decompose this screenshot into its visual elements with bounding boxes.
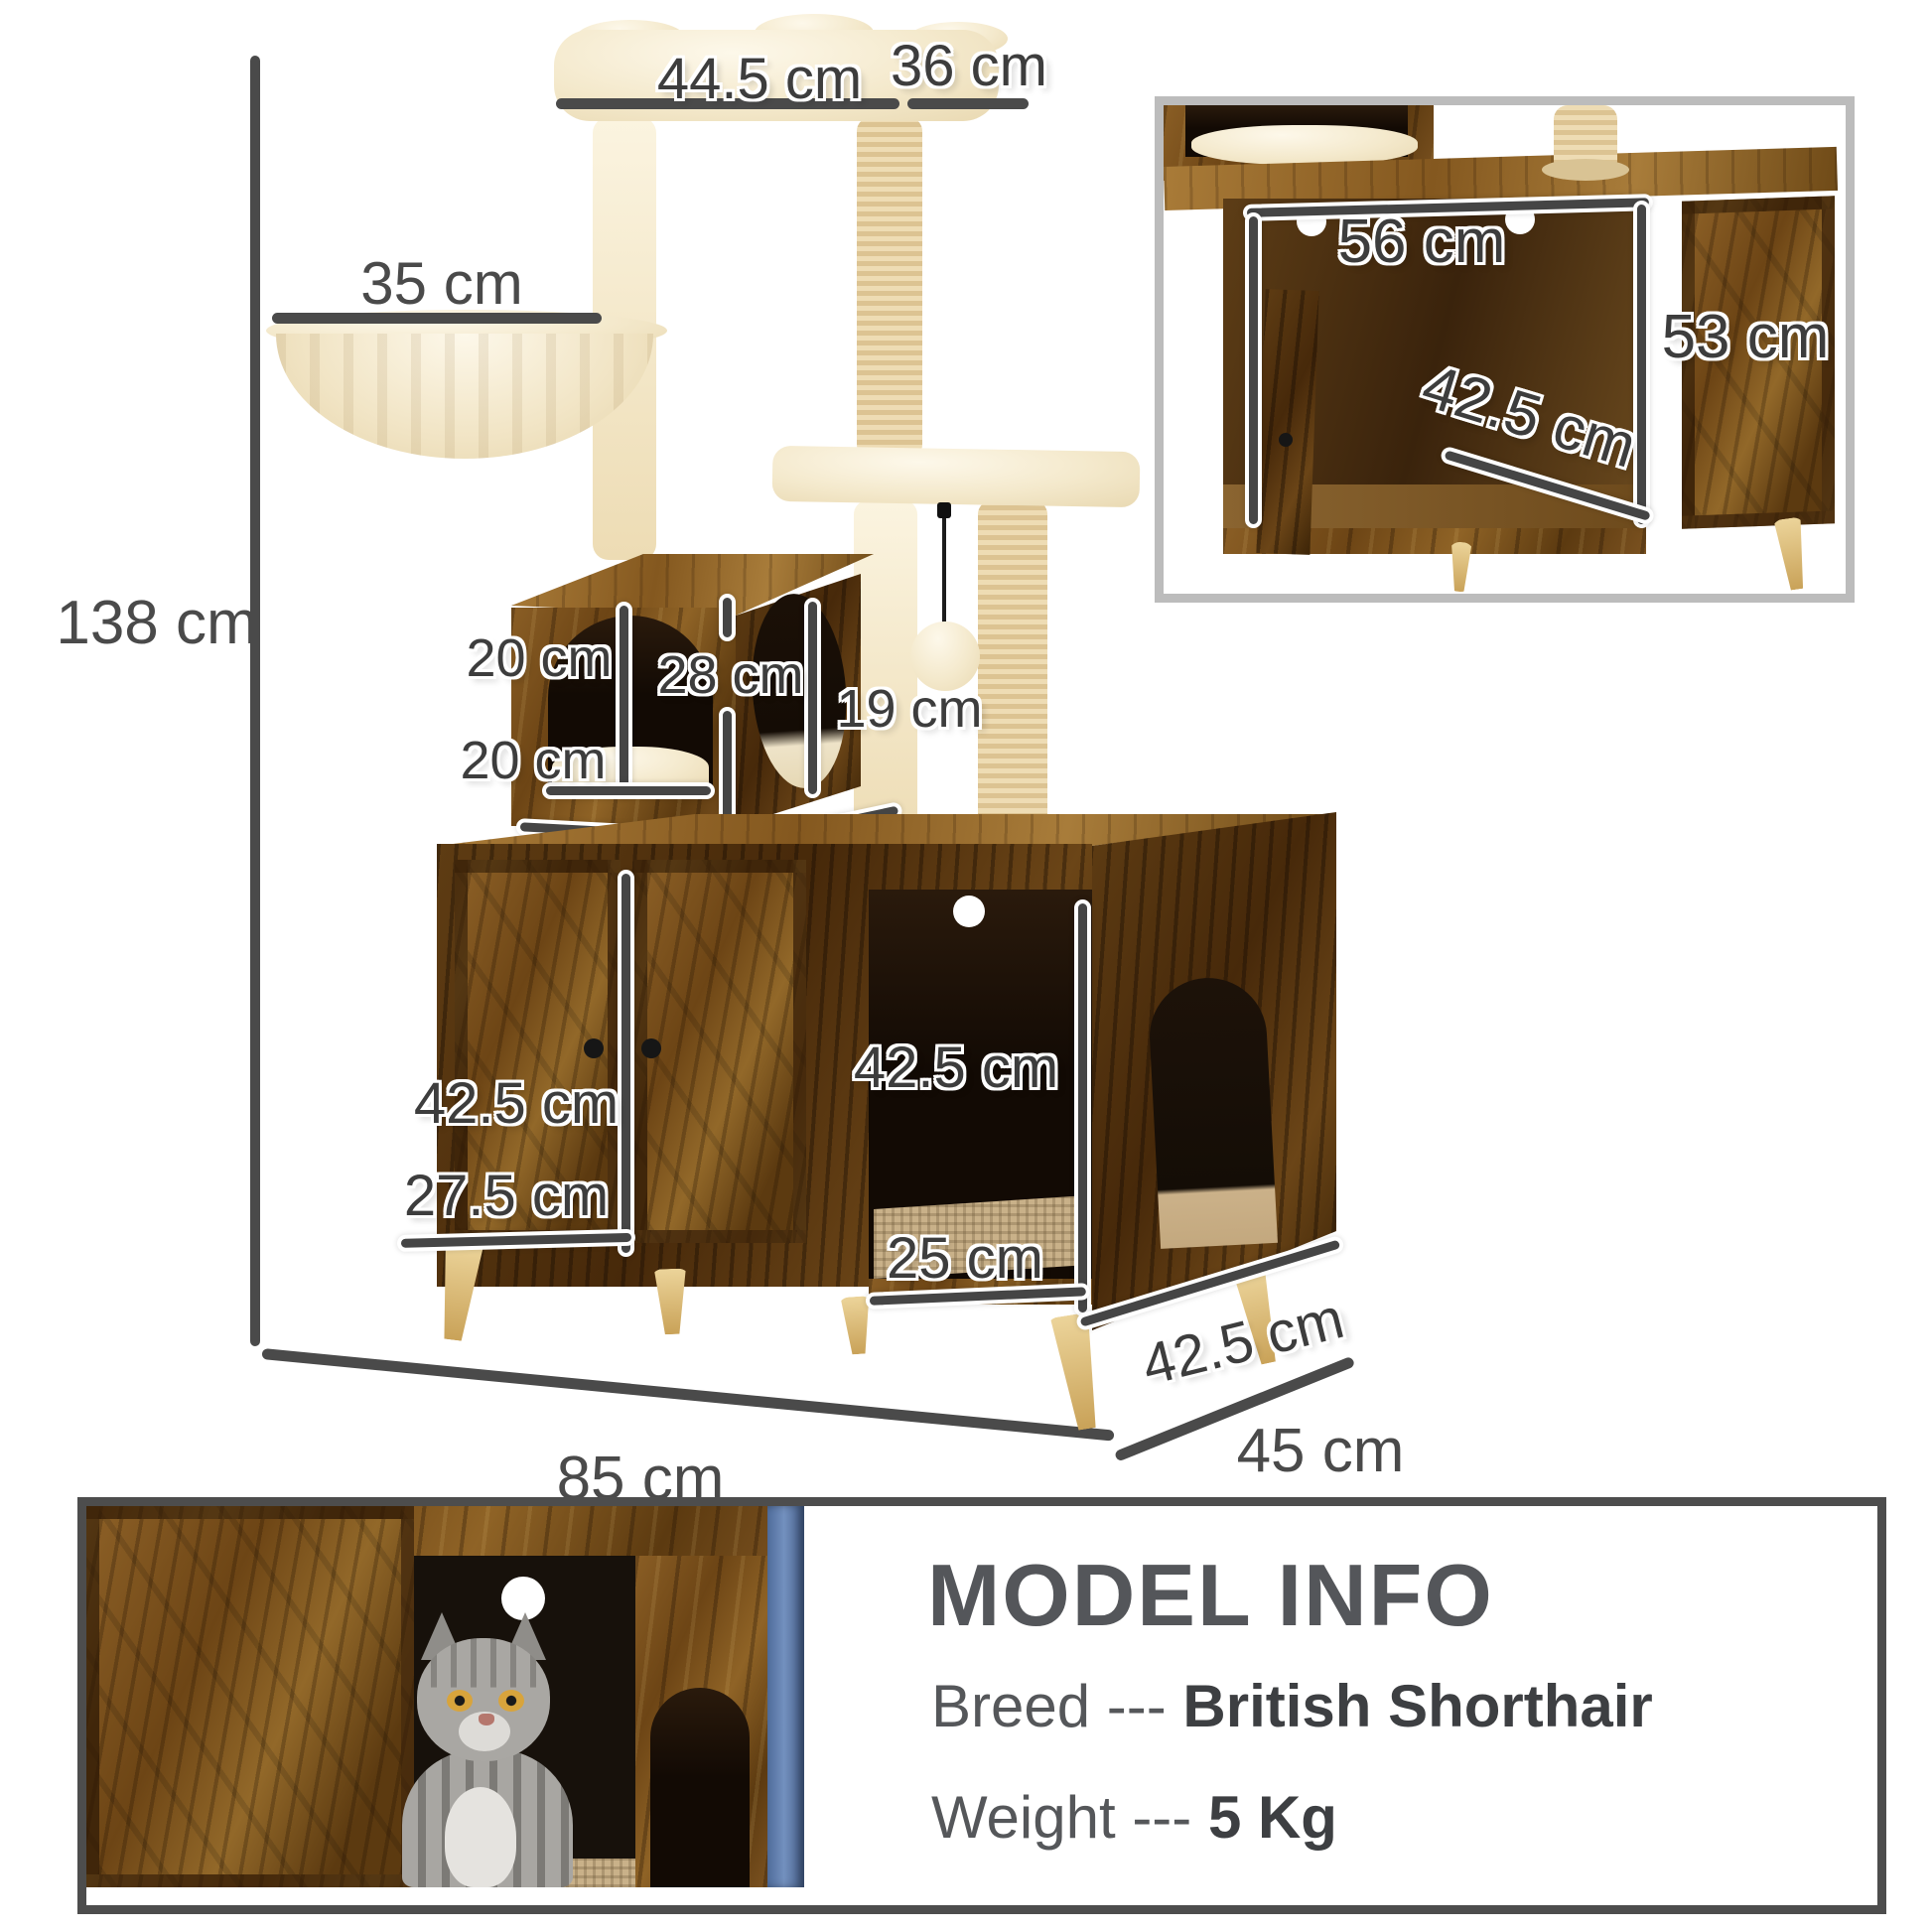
toy-string [942, 504, 946, 629]
top-width-label: 44.5 cm [657, 51, 862, 108]
product-dimension-sheet: 138 cm 85 cm 45 cm 35 cm 44.5 cm 36 cm 2… [0, 0, 1932, 1932]
cat-nose [479, 1714, 494, 1725]
photo-side-arch [650, 1688, 750, 1887]
cable-hole [501, 1577, 545, 1620]
door-height-dimension-line [618, 870, 634, 1257]
cabinet-leg [1045, 1311, 1111, 1433]
inset-open-door-left [1256, 289, 1318, 555]
cat-chest [445, 1787, 516, 1887]
photo-cabinet-door [86, 1506, 414, 1887]
weight-value: 5 Kg [1208, 1784, 1337, 1851]
top-depth-dimension-line [907, 98, 1029, 109]
compartment-height-dimension-line [1074, 899, 1091, 1316]
breed-label: Breed --- [931, 1673, 1167, 1739]
top-depth-label: 36 cm [891, 38, 1047, 95]
breed-value: British Shorthair [1182, 1673, 1652, 1739]
middle-platform [772, 446, 1141, 507]
inset-cube-cushion [1191, 125, 1418, 165]
cat-eye-right [498, 1690, 524, 1712]
inset-height-label: 53 cm [1662, 307, 1830, 368]
compartment-width-label: 25 cm [887, 1230, 1043, 1288]
height-dimension-line [250, 56, 260, 1346]
compartment-height-label: 42.5 cm [854, 1039, 1058, 1097]
house-opening-bottom-label: 20 cm [460, 734, 606, 787]
curtain [767, 1506, 804, 1887]
model-info-weight: Weight --- 5 Kg [931, 1783, 1337, 1852]
door-knob-right [641, 1038, 661, 1058]
base-width-dimension-line [261, 1348, 1114, 1442]
cat-photo [86, 1506, 804, 1887]
hammock-label: 35 cm [360, 254, 522, 314]
scratching-post-lower [978, 500, 1047, 828]
base-depth-label: 45 cm [1237, 1421, 1405, 1482]
cat-eye-left [447, 1690, 473, 1712]
support-post-lower [854, 500, 917, 848]
house-side-opening-label: 19 cm [836, 682, 982, 736]
house-opening-top-label: 20 cm [466, 631, 612, 685]
scratching-post-right-upper [857, 117, 922, 459]
inset-left-dimension-line [1245, 212, 1262, 528]
total-height-label: 138 cm [56, 593, 257, 654]
door-height-label: 42.5 cm [414, 1075, 619, 1133]
inset-door-knob [1279, 433, 1293, 447]
toy-clip [937, 502, 951, 518]
door-knob-left [584, 1038, 604, 1058]
inset-height-dimension-line [1633, 201, 1650, 528]
model-info-breed: Breed --- British Shorthair [931, 1672, 1653, 1740]
cable-hole [953, 896, 985, 927]
door-width-label: 27.5 cm [404, 1168, 609, 1225]
inset-post-base [1542, 159, 1629, 181]
house-side-dimension-line [804, 598, 821, 798]
weight-label: Weight --- [931, 1784, 1191, 1851]
house-left-dimension-line [616, 602, 632, 798]
inset-width-label: 56 cm [1338, 211, 1506, 273]
model-info-title: MODEL INFO [927, 1545, 1494, 1646]
cabinet-side-arch-opening [1147, 975, 1278, 1249]
house-opening-height-label: 28 cm [657, 648, 803, 702]
house-opening-dimension-line-upper [719, 594, 736, 641]
